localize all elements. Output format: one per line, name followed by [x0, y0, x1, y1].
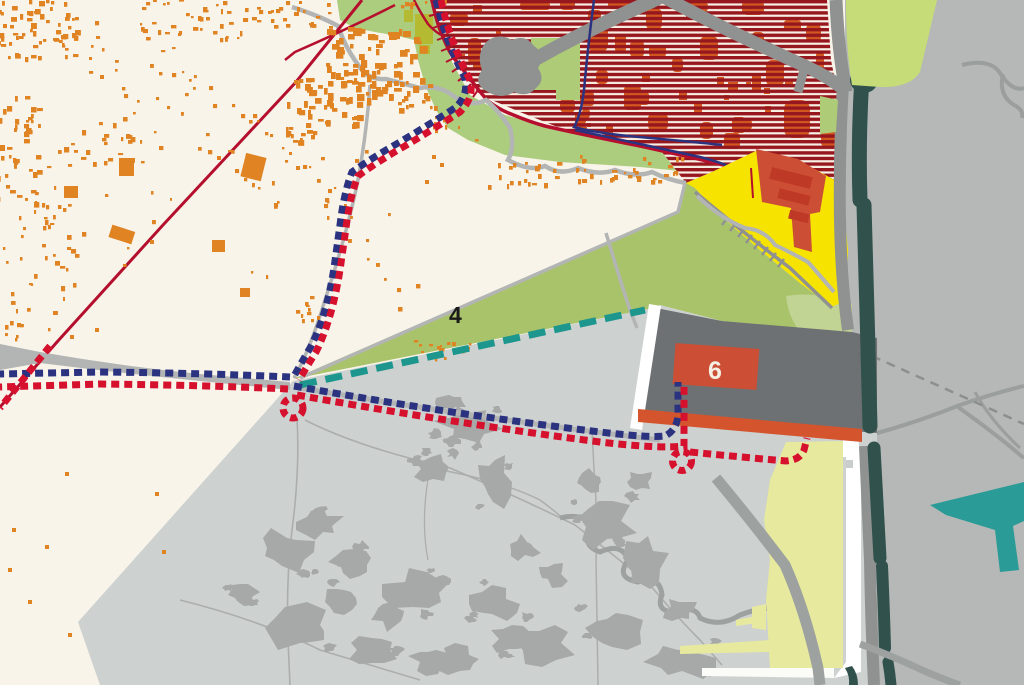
svg-text:4: 4 — [449, 302, 462, 328]
svg-text:6: 6 — [708, 357, 722, 385]
